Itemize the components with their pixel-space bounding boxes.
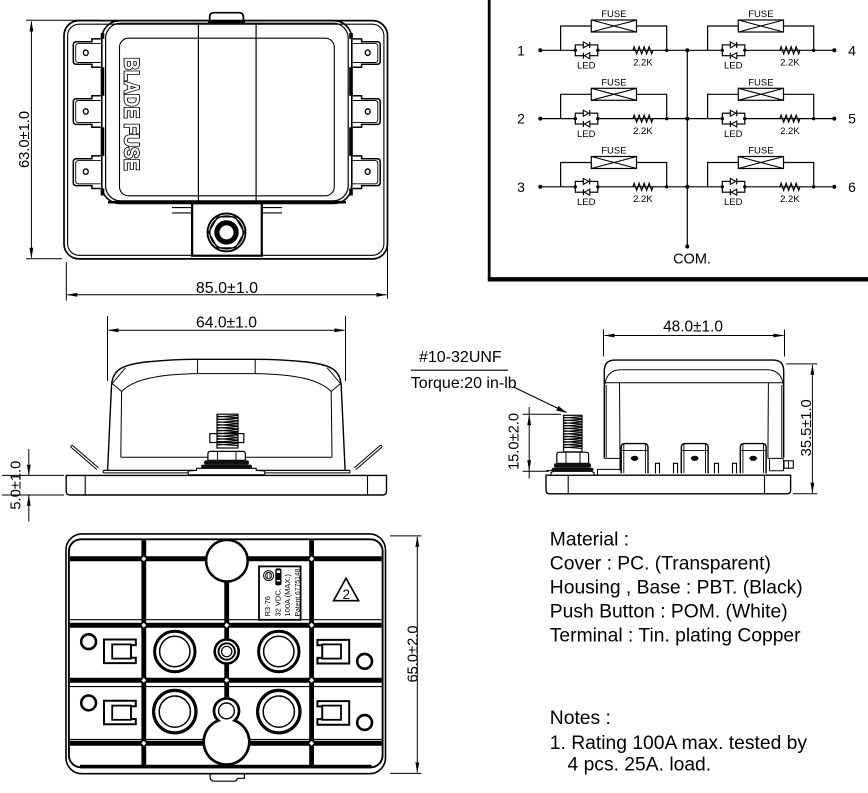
svg-text:FUSE: FUSE — [748, 9, 773, 20]
svg-text:Push Button : POM. (White): Push Button : POM. (White) — [550, 601, 788, 622]
svg-text:63.0±1.0: 63.0±1.0 — [17, 111, 33, 168]
svg-text:BLADE FUSE: BLADE FUSE — [119, 58, 142, 171]
svg-text:85.0±1.0: 85.0±1.0 — [196, 280, 258, 297]
svg-text:2.2K: 2.2K — [633, 194, 653, 205]
svg-text:1. Rating 100A max. tested by: 1. Rating 100A max. tested by — [550, 733, 808, 754]
svg-text:Notes :: Notes : — [550, 708, 611, 729]
svg-text:FUSE: FUSE — [601, 9, 626, 20]
svg-text:5.0±1.0: 5.0±1.0 — [8, 461, 24, 510]
svg-text:2.2K: 2.2K — [780, 58, 800, 69]
svg-text:Terminal : Tin. plating Copper: Terminal : Tin. plating Copper — [550, 625, 801, 646]
svg-text:FUSE: FUSE — [748, 77, 773, 88]
svg-text:2.2K: 2.2K — [633, 126, 653, 137]
svg-text:FUSE: FUSE — [601, 77, 626, 88]
svg-text:Housing , Base : PBT. (Black): Housing , Base : PBT. (Black) — [550, 578, 803, 599]
svg-text:LED: LED — [724, 197, 743, 208]
svg-text:Material :: Material : — [550, 530, 629, 551]
svg-text:#10-32UNF: #10-32UNF — [419, 349, 502, 366]
svg-text:64.0±1.0: 64.0±1.0 — [196, 315, 257, 332]
svg-text:3: 3 — [517, 179, 525, 195]
svg-text:1: 1 — [517, 42, 525, 58]
svg-text:65.0±2.0: 65.0±2.0 — [406, 625, 422, 682]
svg-text:48.0±1.0: 48.0±1.0 — [663, 319, 723, 336]
svg-text:COM.: COM. — [673, 252, 711, 268]
svg-text:LED: LED — [724, 129, 743, 140]
svg-text:Torque:20 in-lb: Torque:20 in-lb — [411, 375, 517, 392]
svg-text:FUSE: FUSE — [748, 146, 773, 157]
svg-text:35.5±1.0: 35.5±1.0 — [799, 399, 815, 456]
svg-text:5: 5 — [848, 111, 856, 127]
svg-text:FUSE: FUSE — [601, 146, 626, 157]
svg-text:100A (MAX.): 100A (MAX.) — [283, 573, 292, 616]
svg-text:Patent 6775148: Patent 6775148 — [295, 568, 302, 616]
svg-text:LED: LED — [724, 61, 743, 72]
svg-text:6: 6 — [848, 179, 856, 195]
svg-text:32 VDC.: 32 VDC. — [273, 588, 282, 616]
svg-text:2.2K: 2.2K — [780, 126, 800, 137]
svg-text:4 pcs. 25A. load.: 4 pcs. 25A. load. — [568, 755, 712, 776]
svg-text:15.0±2.0: 15.0±2.0 — [506, 413, 522, 470]
svg-text:LED: LED — [577, 197, 596, 208]
svg-text:2: 2 — [517, 111, 525, 127]
svg-text:LED: LED — [577, 129, 596, 140]
svg-text:LED: LED — [577, 61, 596, 72]
svg-text:2: 2 — [343, 587, 351, 602]
svg-text:2.2K: 2.2K — [633, 58, 653, 69]
svg-text:R3-76: R3-76 — [263, 596, 272, 616]
svg-text:2.2K: 2.2K — [780, 194, 800, 205]
svg-text:4: 4 — [848, 42, 856, 58]
svg-text:Cover : PC. (Transparent): Cover : PC. (Transparent) — [550, 554, 771, 575]
